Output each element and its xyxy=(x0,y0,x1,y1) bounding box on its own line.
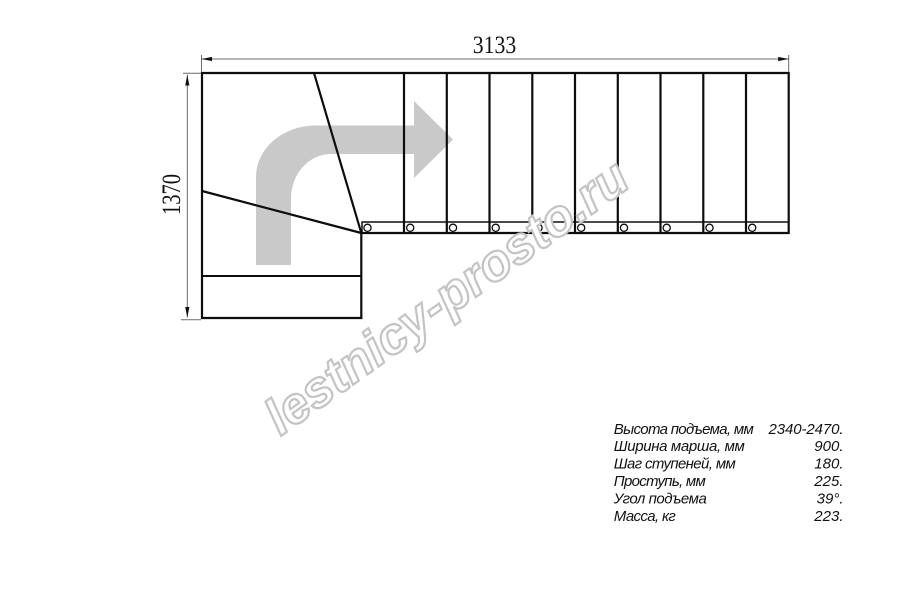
svg-text:Проступь, мм: Проступь, мм xyxy=(614,473,706,490)
svg-text:Высота подъема, мм: Высота подъема, мм xyxy=(614,421,754,438)
svg-text:1370: 1370 xyxy=(157,174,186,215)
svg-text:Угол подъема: Угол подъема xyxy=(613,490,707,507)
svg-text:39°.: 39°. xyxy=(817,490,844,507)
svg-text:900.: 900. xyxy=(814,438,843,455)
svg-text:Шаг ступеней, мм: Шаг ступеней, мм xyxy=(614,456,736,473)
svg-text:2340-2470.: 2340-2470. xyxy=(768,421,844,438)
svg-text:223.: 223. xyxy=(813,508,843,525)
svg-text:Ширина марша, мм: Ширина марша, мм xyxy=(614,438,745,455)
svg-text:3133: 3133 xyxy=(473,32,517,59)
svg-text:180.: 180. xyxy=(814,456,843,473)
svg-text:225.: 225. xyxy=(813,473,843,490)
svg-text:Масса, кг: Масса, кг xyxy=(614,508,677,525)
